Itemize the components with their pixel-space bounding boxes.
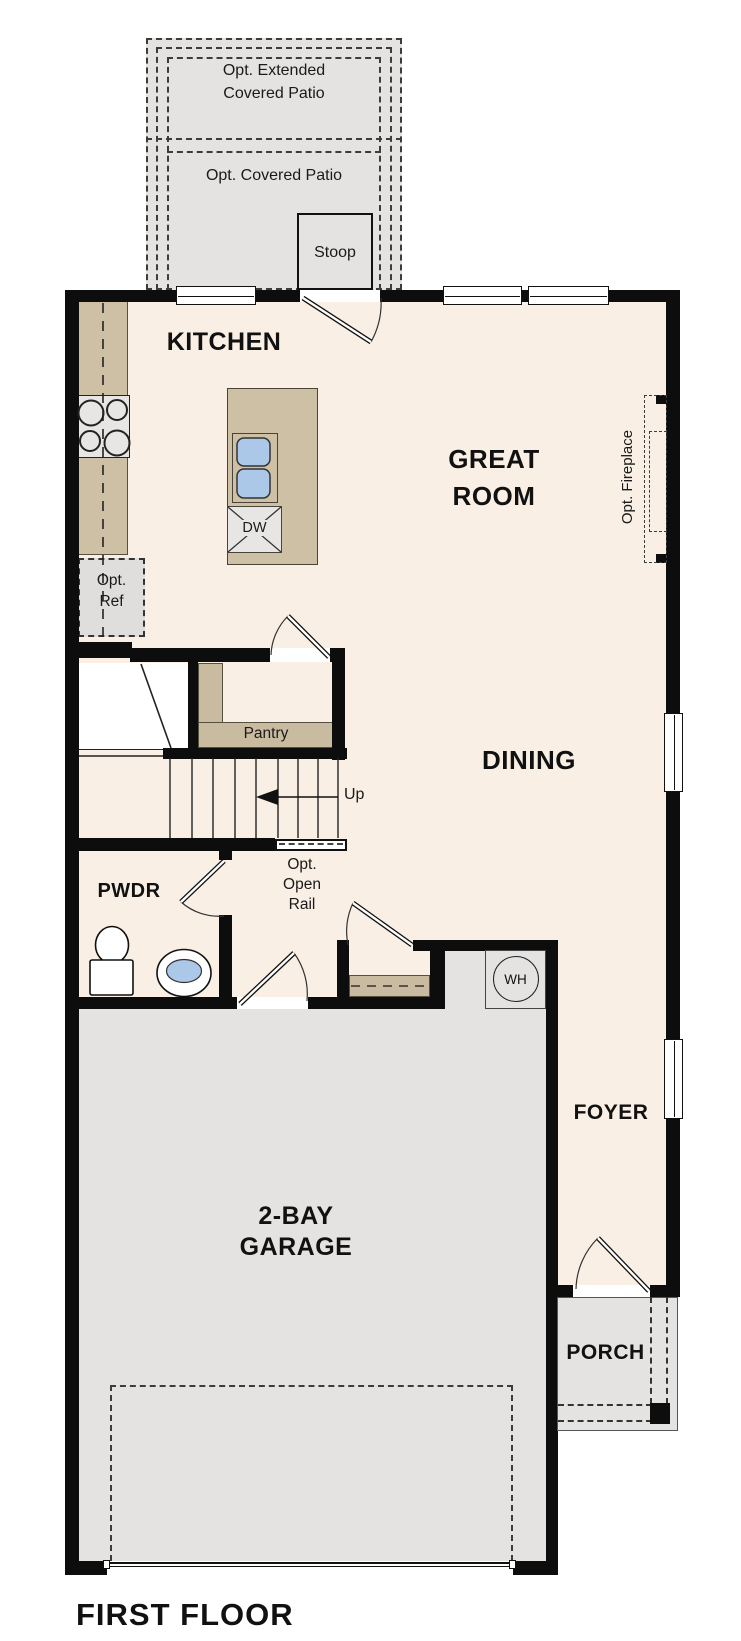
porch-label: PORCH [557, 1341, 654, 1364]
window-great-room-1 [443, 286, 522, 305]
ext-patio-label-1: Opt. Extended [146, 62, 402, 80]
wall-closet-left [337, 940, 349, 1009]
porch-roofline-v2 [666, 1297, 668, 1404]
great-room-label-2: ROOM [394, 482, 594, 511]
dining-label: DINING [429, 746, 629, 775]
kitchen-label: KITCHEN [124, 329, 324, 357]
wall-stair-top [163, 748, 347, 759]
water-heater-label: WH [504, 972, 527, 987]
stoop-label: Stoop [297, 244, 373, 262]
patio-divider-inner [167, 151, 381, 153]
opt-ref-label-1: Opt. [78, 572, 145, 590]
cov-patio-label: Opt. Covered Patio [146, 167, 402, 185]
water-heater-closet: WH [485, 950, 546, 1009]
opt-open-rail [275, 839, 347, 851]
dishwasher-label: DW [227, 520, 282, 537]
pwdr-label: PWDR [79, 880, 179, 902]
plan-title: FIRST FLOOR [76, 1598, 476, 1632]
opening-garage-entry [237, 997, 308, 1009]
floor-plan: WH [0, 0, 741, 1641]
wall-pwdr-right [219, 915, 232, 999]
window-great-room-2 [528, 286, 609, 305]
wall-pantry-right [332, 648, 345, 760]
foyer-label: FOYER [561, 1101, 661, 1124]
stove [76, 395, 130, 458]
open-rail-label-2: Open [262, 876, 342, 894]
porch-roofline-h1 [558, 1404, 652, 1406]
island-sink-cabinet [232, 433, 278, 503]
opt-fireplace-label: Opt. Fireplace [619, 407, 637, 547]
window-kitchen [176, 286, 256, 305]
wall-stair-bottom [65, 838, 275, 851]
garage-door-dashed-area [110, 1385, 513, 1561]
great-room-label-1: GREAT [394, 445, 594, 474]
garage-door-panel [107, 1562, 513, 1567]
understair-closet [79, 663, 188, 750]
opt-ref-label-2: Ref [78, 593, 145, 611]
garage-door-jamb-left [103, 1560, 110, 1569]
garage-door-jamb-right [509, 1560, 516, 1569]
wall-garage-right [546, 940, 558, 1575]
opening-back-door [300, 290, 380, 302]
garage-label-2: GARAGE [196, 1234, 396, 1262]
pantry-label: Pantry [198, 725, 334, 743]
open-rail-label-3: Rail [262, 896, 342, 914]
water-heater-icon: WH [493, 956, 539, 1002]
wall-right [666, 290, 680, 1297]
opt-fireplace-inner [649, 431, 667, 532]
opening-pantry-door [270, 648, 330, 662]
foyer-closet-shelf [349, 975, 430, 997]
wall-closet-right [430, 940, 445, 1009]
up-label: Up [344, 786, 384, 804]
opening-front-door [573, 1285, 650, 1297]
porch-post [650, 1403, 670, 1424]
wall-left [65, 290, 79, 1575]
patio-divider-outer [146, 138, 402, 140]
wall-pwdr-door-stub [219, 838, 232, 860]
wall-below-ref [65, 642, 132, 658]
window-foyer [664, 1039, 683, 1119]
wall-closet-separator [188, 660, 198, 750]
open-rail-label-1: Opt. [262, 856, 342, 874]
porch-roofline-h2 [558, 1420, 652, 1422]
ext-patio-label-2: Covered Patio [146, 85, 402, 103]
window-dining [664, 713, 683, 792]
garage-label-1: 2-BAY [196, 1203, 396, 1231]
